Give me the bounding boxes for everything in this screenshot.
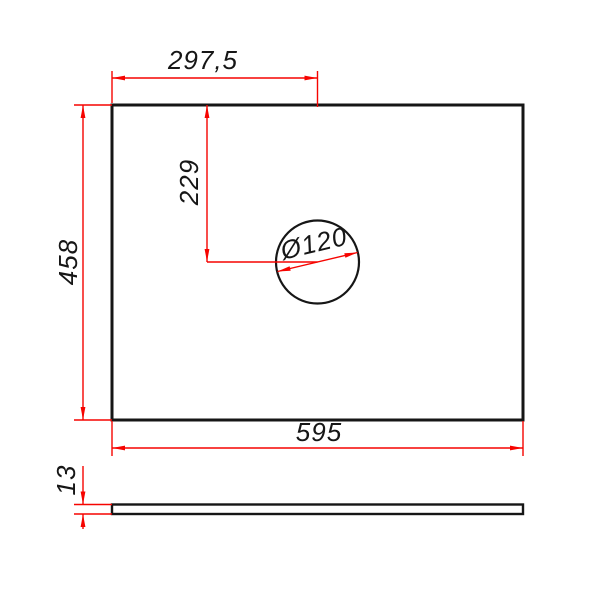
dimension-panel-height: 458	[53, 105, 112, 420]
dimension-label-hole-offset-y: 229	[174, 159, 204, 206]
dimension-label-panel-width: 595	[296, 417, 342, 447]
arrowhead-left-icon	[112, 446, 125, 451]
arrowhead-up-icon	[81, 105, 86, 118]
arrowhead-up-icon	[81, 514, 86, 527]
arrowhead-right-icon	[510, 446, 523, 451]
side-view	[112, 505, 523, 515]
arrowhead-down-icon	[81, 492, 86, 505]
dimension-label-hole-offset-x: 297,5	[167, 45, 238, 75]
drawing-canvas: 297,5 229 Ø120 458	[0, 0, 600, 600]
arrowhead-left-icon	[112, 76, 125, 81]
dimension-panel-thickness: 13	[51, 465, 112, 529]
arrowhead-down-icon	[81, 407, 86, 420]
panel-side-outline	[112, 505, 523, 515]
dimension-panel-width: 595	[112, 417, 523, 456]
technical-drawing: 297,5 229 Ø120 458	[0, 0, 600, 600]
dimension-label-panel-thickness: 13	[51, 465, 81, 496]
dimension-label-panel-height: 458	[53, 239, 83, 285]
arrowhead-right-icon	[305, 76, 318, 81]
dimension-hole-offset-x: 297,5	[112, 45, 318, 107]
